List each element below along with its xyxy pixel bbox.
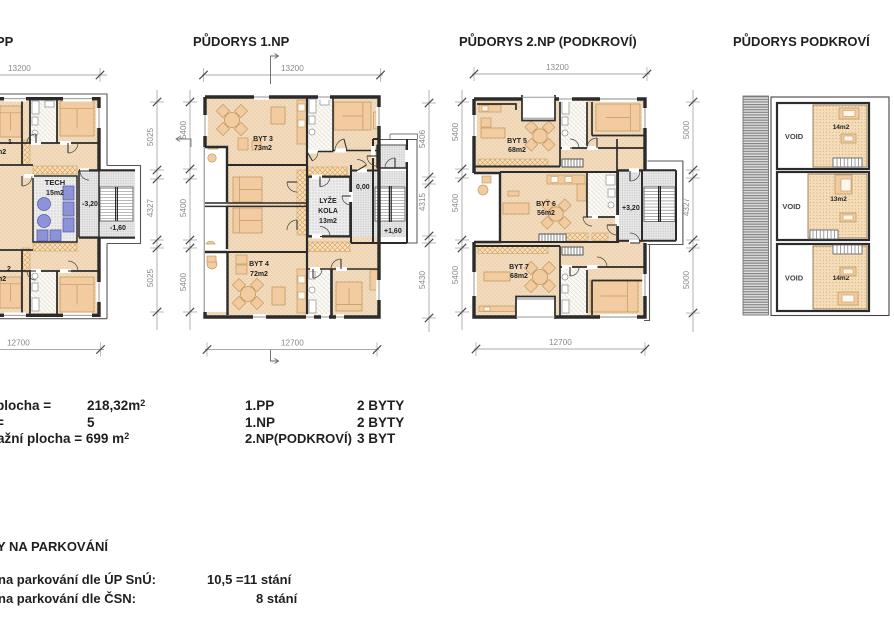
svg-text:ažní plocha = 699 m2: ažní plocha = 699 m2: [0, 431, 129, 446]
svg-text:PŮDORYS 1.NP: PŮDORYS 1.NP: [193, 33, 290, 49]
svg-text:5000: 5000: [682, 270, 691, 289]
svg-text:-1,60: -1,60: [110, 225, 126, 232]
svg-text:5430: 5430: [418, 270, 427, 289]
svg-text:5406: 5406: [418, 129, 427, 148]
svg-text:LYŽE: LYŽE: [319, 196, 337, 205]
svg-text:VOID: VOID: [785, 132, 804, 141]
svg-text:PP: PP: [0, 34, 14, 49]
svg-text:8 stání: 8 stání: [256, 591, 298, 606]
svg-text:68m2: 68m2: [508, 147, 526, 154]
svg-text:13m2: 13m2: [830, 196, 847, 203]
svg-text:15m2: 15m2: [46, 190, 64, 197]
svg-text:5400: 5400: [451, 122, 460, 141]
svg-text:5: 5: [87, 415, 95, 430]
svg-text:1.PP: 1.PP: [245, 398, 274, 413]
svg-text:68m2: 68m2: [510, 273, 528, 280]
svg-text:1.NP: 1.NP: [245, 415, 275, 430]
svg-text:13m2: 13m2: [319, 218, 337, 225]
svg-text:-3,20: -3,20: [82, 201, 98, 208]
svg-text:5000: 5000: [682, 120, 691, 139]
svg-text:73m2: 73m2: [254, 145, 272, 152]
svg-text:56m2: 56m2: [537, 210, 555, 217]
svg-text:5400: 5400: [179, 272, 188, 291]
svg-text:14m2: 14m2: [833, 124, 850, 131]
svg-text:5400: 5400: [451, 193, 460, 212]
svg-text:10,5 =11 stání: 10,5 =11 stání: [207, 572, 292, 587]
svg-text:Y NA PARKOVÁNÍ: Y NA PARKOVÁNÍ: [0, 539, 108, 554]
svg-text:218,32m2: 218,32m2: [87, 398, 145, 413]
svg-text:4327: 4327: [146, 198, 155, 217]
svg-text:1: 1: [8, 139, 12, 146]
svg-text:PŮDORYS 2.NP (PODKROVÍ): PŮDORYS 2.NP (PODKROVÍ): [459, 33, 637, 49]
svg-text:4327: 4327: [682, 197, 691, 216]
svg-text:5400: 5400: [451, 265, 460, 284]
svg-text:VOID: VOID: [782, 202, 801, 211]
svg-text:na parkování dle ČSN:: na parkování dle ČSN:: [0, 591, 136, 606]
svg-text:13200: 13200: [8, 64, 31, 73]
svg-text:5025: 5025: [146, 127, 155, 146]
svg-text:=: =: [0, 415, 4, 430]
svg-text:4315: 4315: [418, 192, 427, 211]
svg-text:2 BYTY: 2 BYTY: [357, 415, 404, 430]
svg-text:na parkování dle ÚP SnÚ:: na parkování dle ÚP SnÚ:: [0, 572, 156, 587]
svg-text:2: 2: [7, 266, 11, 273]
svg-text:13200: 13200: [546, 63, 569, 72]
svg-text:+1,60: +1,60: [384, 228, 402, 235]
svg-text:5025: 5025: [146, 268, 155, 287]
svg-text:plocha =: plocha =: [0, 398, 51, 413]
svg-text:BYT 4: BYT 4: [249, 261, 269, 268]
svg-text:m2: m2: [0, 276, 6, 283]
svg-text:TECH: TECH: [45, 178, 65, 187]
svg-text:m2: m2: [0, 149, 6, 156]
svg-text:+3,20: +3,20: [622, 205, 640, 212]
svg-text:BYT 5: BYT 5: [507, 138, 527, 145]
svg-text:BYT 6: BYT 6: [536, 201, 556, 208]
svg-text:2 BYTY: 2 BYTY: [357, 398, 404, 413]
svg-text:13200: 13200: [281, 64, 304, 73]
svg-text:5400: 5400: [179, 120, 188, 139]
svg-text:12700: 12700: [549, 338, 572, 347]
svg-text:BYT 7: BYT 7: [509, 264, 529, 271]
svg-text:VOID: VOID: [785, 274, 804, 283]
svg-text:KOLA: KOLA: [318, 208, 338, 215]
svg-text:12700: 12700: [7, 339, 30, 348]
svg-text:5400: 5400: [179, 198, 188, 217]
svg-text:2.NP(PODKROVÍ): 2.NP(PODKROVÍ): [245, 431, 352, 446]
svg-text:12700: 12700: [281, 339, 304, 348]
svg-text:0,00: 0,00: [356, 184, 370, 191]
svg-text:BYT 3: BYT 3: [253, 136, 273, 143]
svg-text:PŮDORYS PODKROVÍ: PŮDORYS PODKROVÍ: [733, 33, 870, 49]
svg-text:72m2: 72m2: [250, 271, 268, 278]
svg-text:3 BYT: 3 BYT: [357, 431, 396, 446]
